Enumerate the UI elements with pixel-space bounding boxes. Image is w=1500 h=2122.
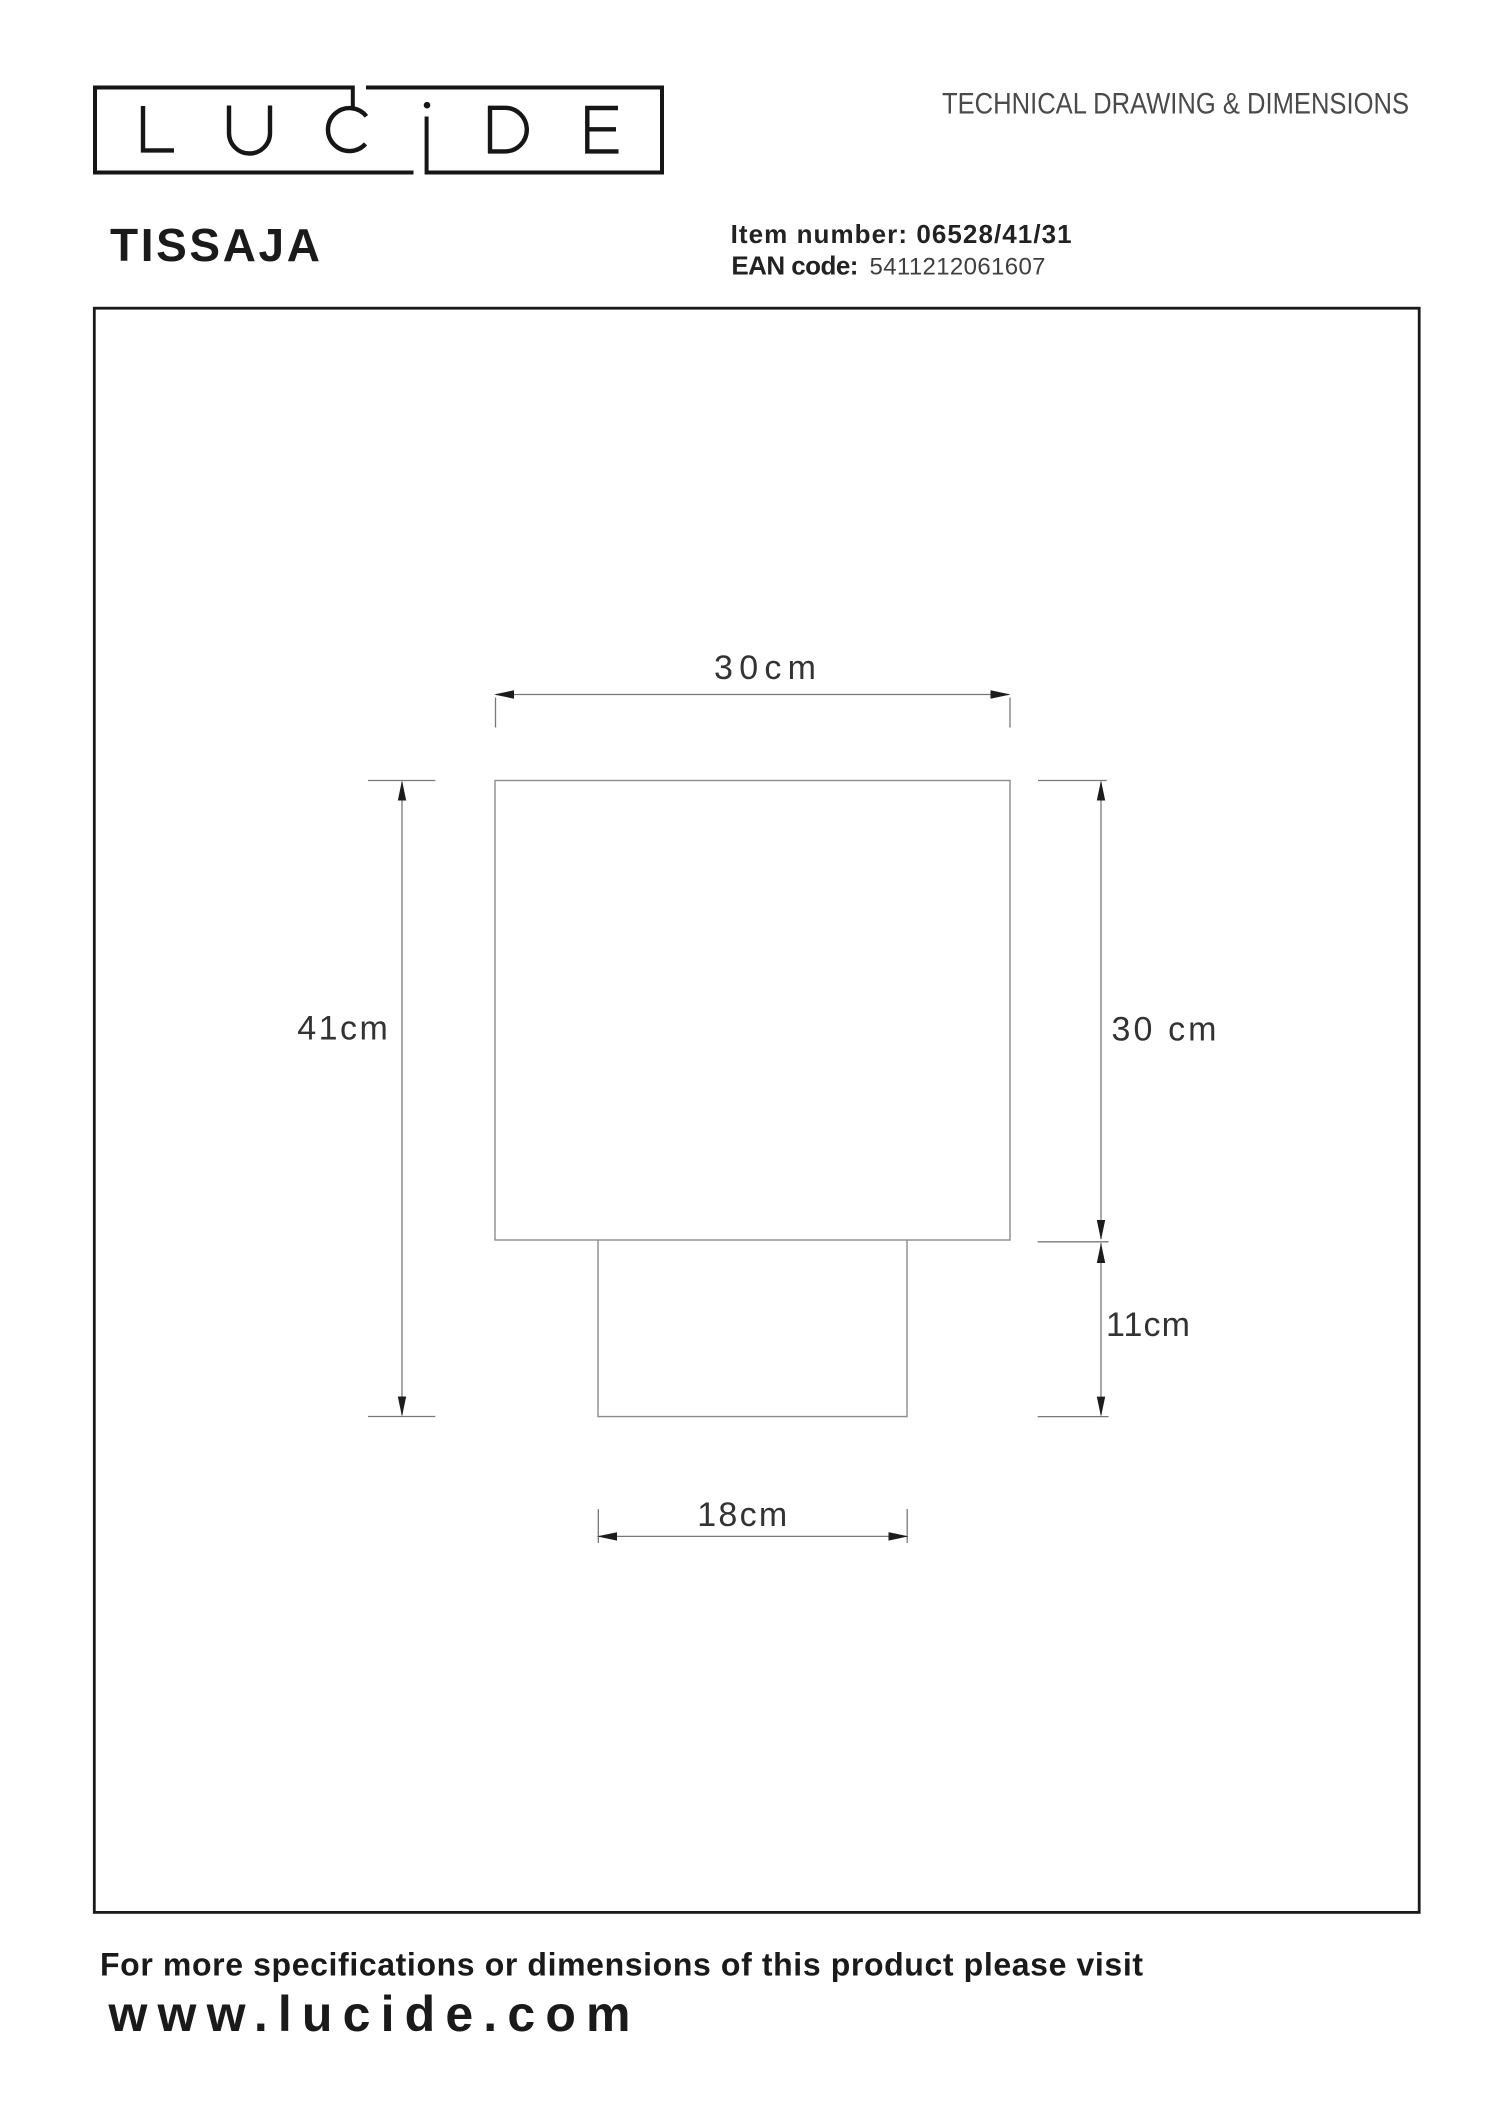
svg-text:18cm: 18cm (697, 1496, 787, 1534)
svg-text:TISSAJA: TISSAJA (110, 219, 320, 271)
svg-text:41cm: 41cm (297, 1010, 388, 1048)
svg-text:TECHNICAL DRAWING & DIMENSIONS: TECHNICAL DRAWING & DIMENSIONS (942, 87, 1409, 120)
svg-text:30 cm: 30 cm (1112, 1010, 1217, 1048)
svg-text:5411212061607: 5411212061607 (870, 254, 1046, 281)
svg-text:www.lucide.com: www.lucide.com (108, 1986, 631, 2042)
svg-text:30cm: 30cm (714, 649, 816, 687)
svg-text:Item number: 06528/41/31: Item number: 06528/41/31 (731, 219, 1072, 249)
svg-text:EAN code:: EAN code: (731, 251, 858, 281)
svg-text:11cm: 11cm (1106, 1306, 1190, 1344)
svg-text:For more specifications or dim: For more specifications or dimensions of… (100, 1947, 1143, 1983)
